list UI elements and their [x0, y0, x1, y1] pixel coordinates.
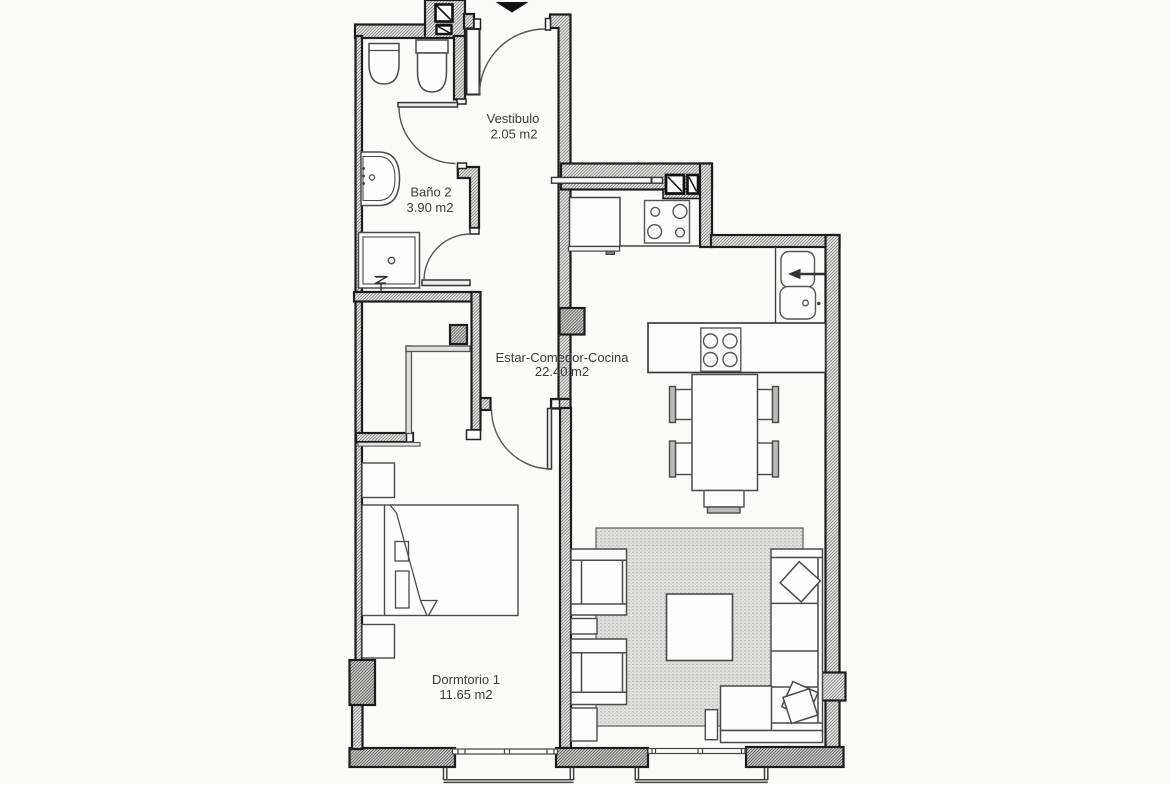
svg-text:Estar-Comedor-Cocina: Estar-Comedor-Cocina	[496, 350, 630, 365]
svg-text:11.65 m2: 11.65 m2	[439, 687, 492, 702]
svg-text:22.40 m2: 22.40 m2	[535, 364, 589, 379]
svg-text:Baño 2: Baño 2	[410, 185, 451, 200]
svg-text:2.05 m2: 2.05 m2	[491, 127, 538, 142]
svg-text:Vestibulo: Vestibulo	[487, 111, 540, 126]
svg-text:Dormtorio 1: Dormtorio 1	[432, 672, 500, 687]
svg-text:3.90 m2: 3.90 m2	[407, 200, 454, 215]
